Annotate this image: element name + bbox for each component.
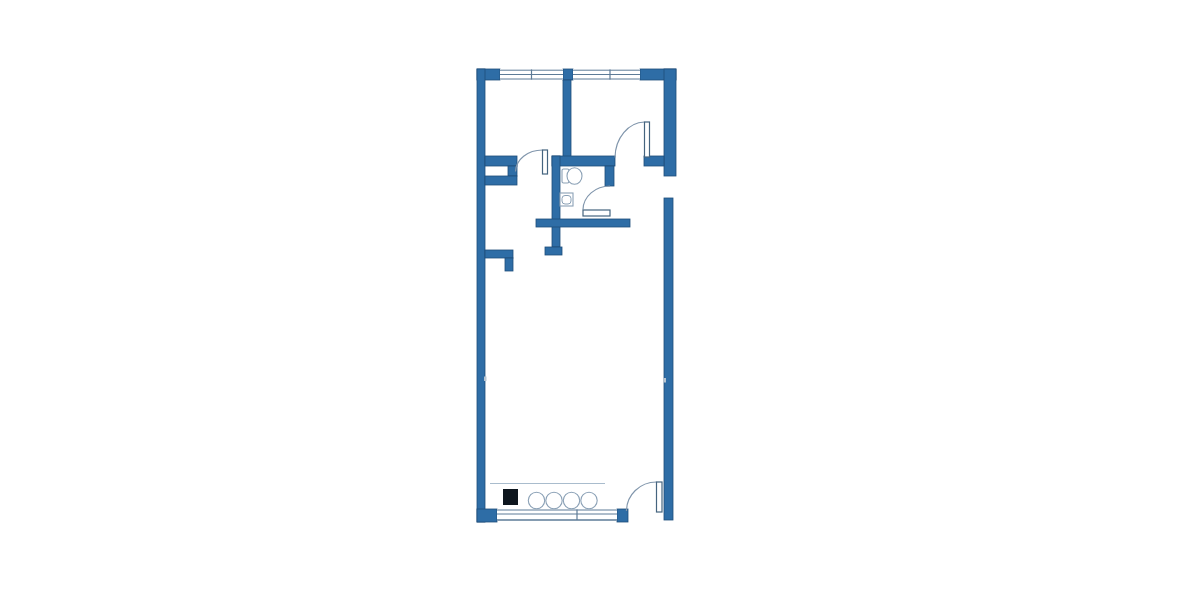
hall-bathroom-wall [552,156,560,247]
kitchen-stub-horizontal [485,250,513,258]
left-exterior-wall [477,69,485,522]
sink-basin [562,196,571,205]
hall-door-arc [516,150,543,172]
bedroom-divider-wall [563,80,571,157]
bathroom-north-wall [552,156,615,166]
right-exterior-wall-lower [664,198,673,520]
shaft-south-wall [485,176,517,185]
bathroom-door-arc [583,186,610,210]
bottom-window-glass [497,509,617,521]
left-wall-joint-tick [484,377,487,382]
top-wall-mid-block [563,69,573,80]
entry-door-arc [627,482,657,511]
bathroom-east-wall [605,166,614,186]
hall-door-leaf [543,150,548,174]
bedroom2-door-leaf [645,122,650,157]
bottom-left-corner-block [477,509,497,522]
bathroom-door-leaf [583,210,610,216]
kitchen-appliance-block [503,489,518,505]
toilet-bowl [567,168,582,184]
kitchen-burner-4 [581,492,597,508]
kitchen-burner-2 [546,492,562,508]
floor-plan-canvas [0,0,1200,600]
right-wall-joint-tick [664,378,667,383]
hall-north-wall-left-segment [485,156,517,166]
bedroom2-door-arc [615,122,645,158]
kitchen-burner-1 [528,492,544,508]
right-exterior-wall-upper [664,69,676,176]
hall-wall-end-cap [545,247,562,255]
bathroom-south-wall [536,219,630,227]
page-background [0,0,1200,600]
entry-door-leaf [657,482,663,512]
kitchen-stub-vertical [505,258,513,271]
kitchen-burner-3 [563,492,579,508]
